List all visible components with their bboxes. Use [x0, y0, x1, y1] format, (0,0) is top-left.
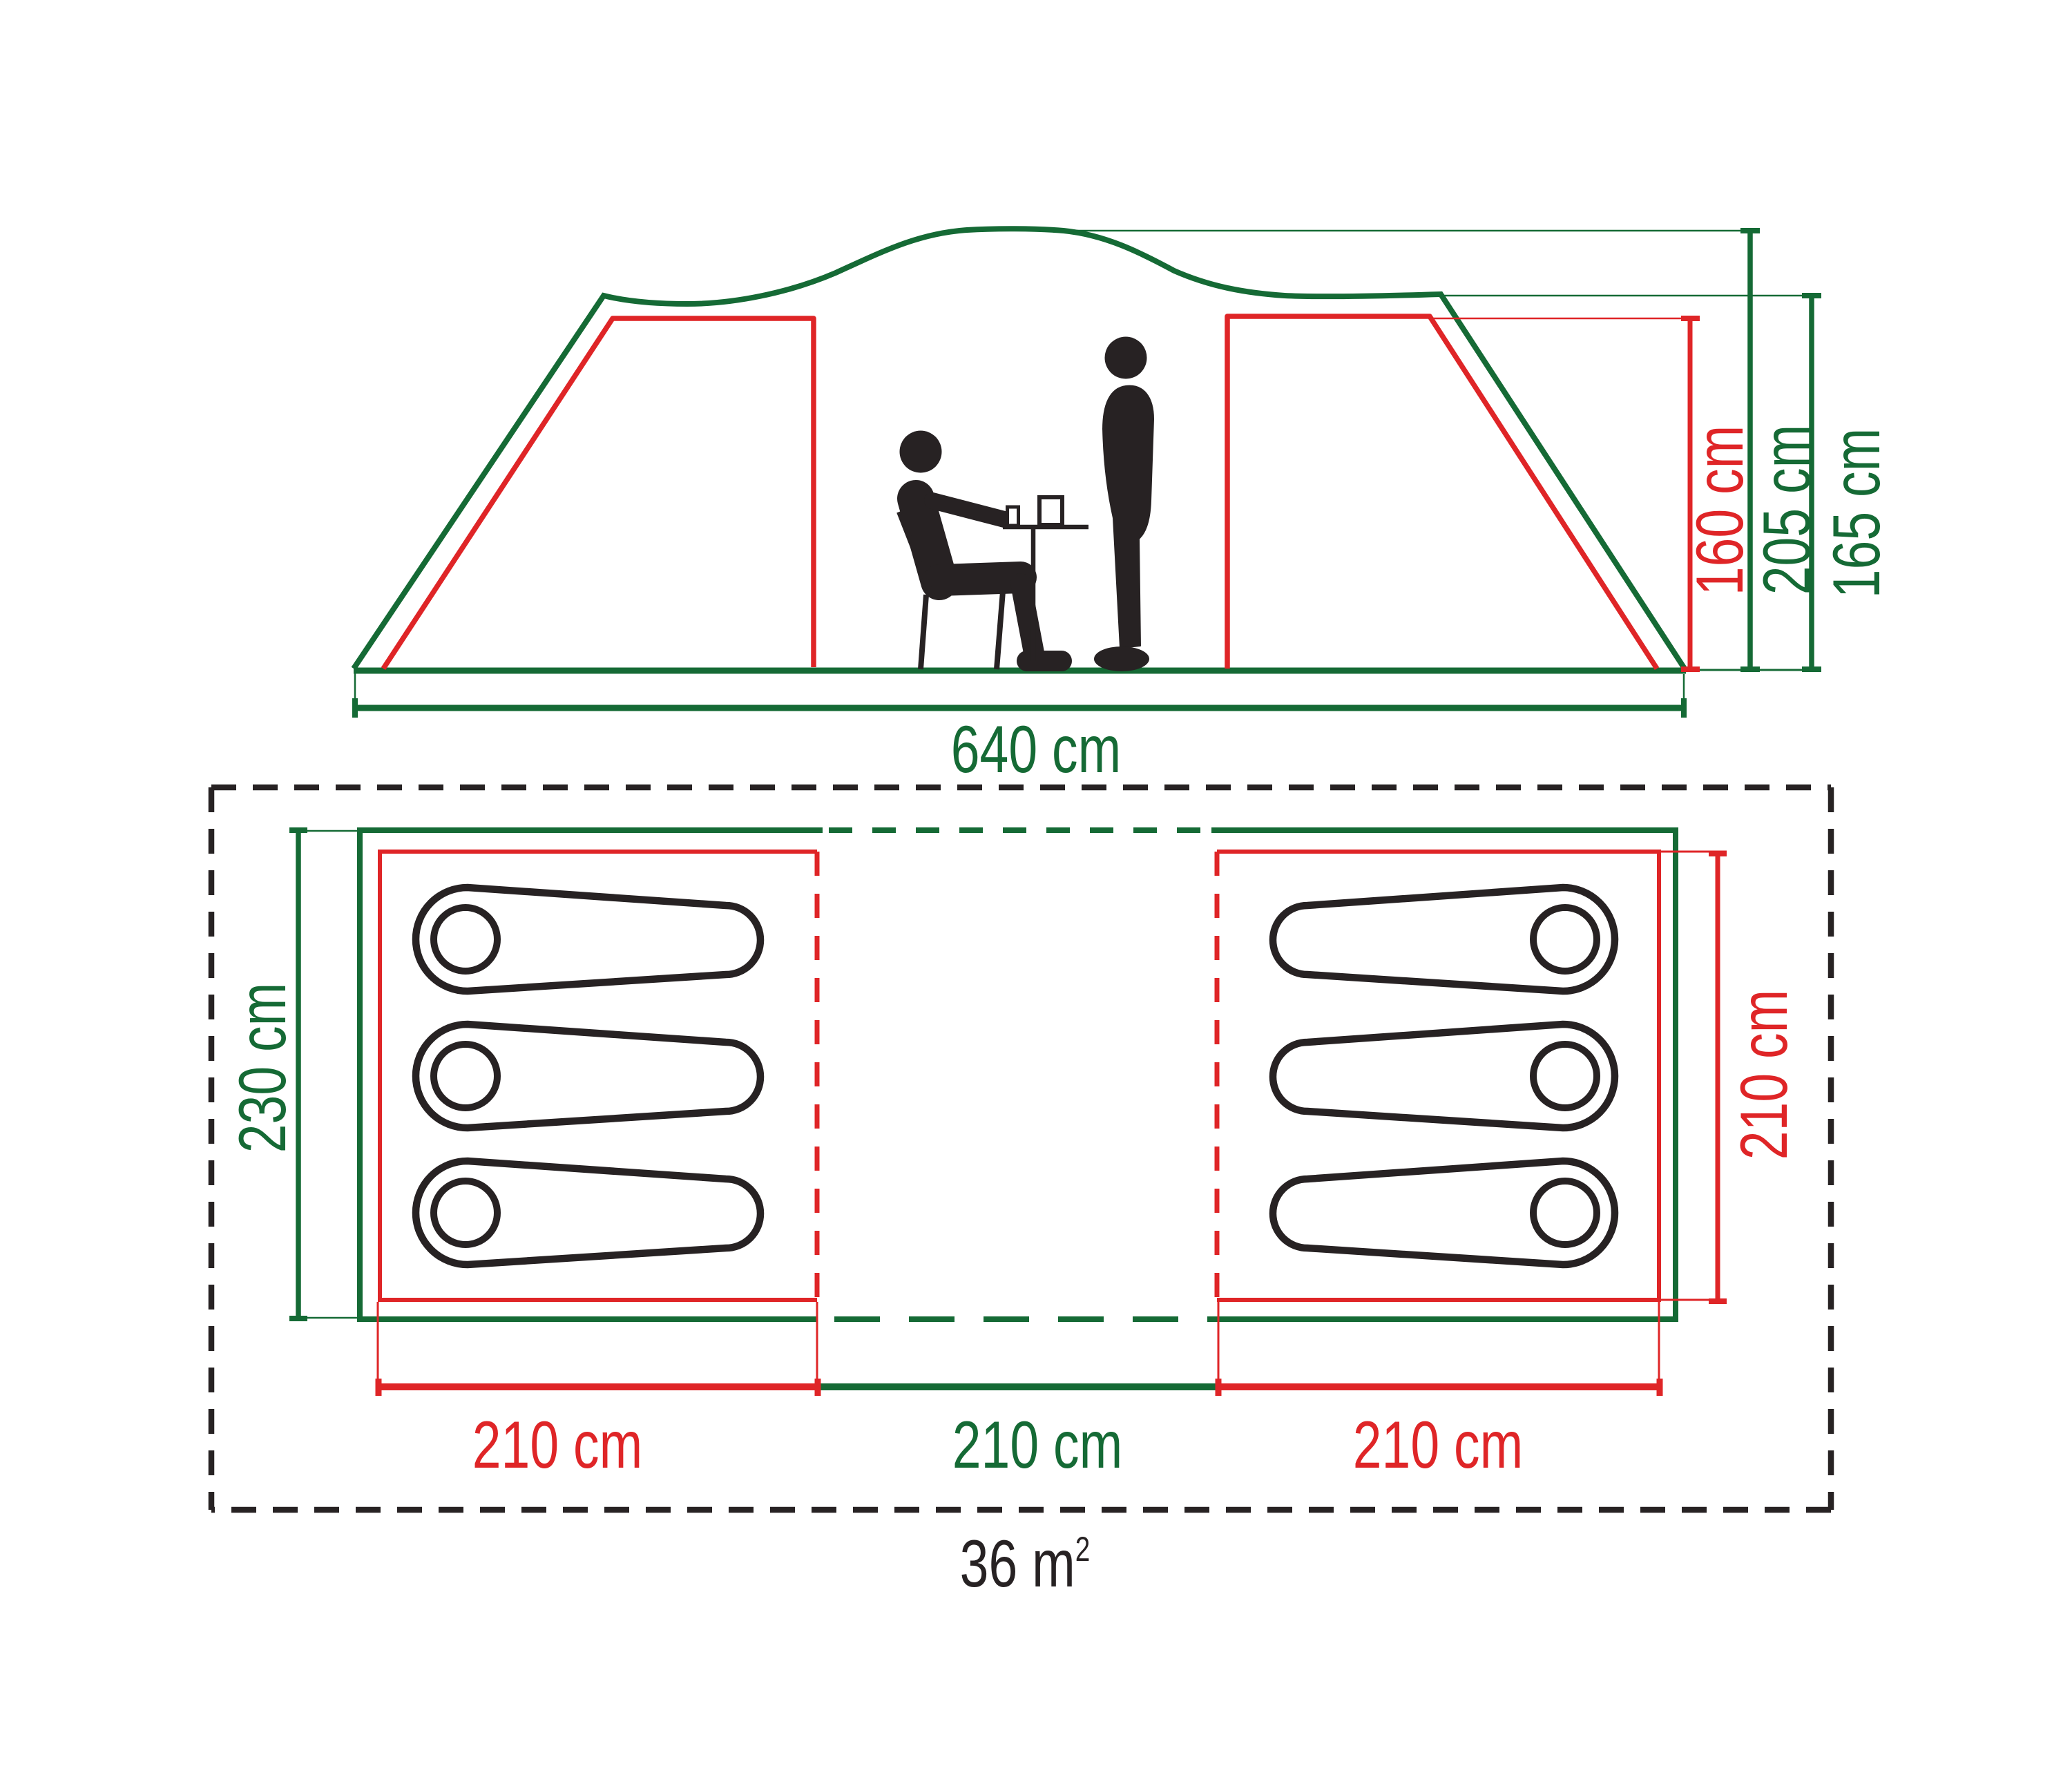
svg-text:205 cm: 205 cm	[1749, 425, 1824, 595]
svg-text:165 cm: 165 cm	[1819, 428, 1894, 598]
svg-text:230 cm: 230 cm	[225, 983, 300, 1153]
svg-text:210 cm: 210 cm	[472, 1408, 642, 1482]
svg-text:210 cm: 210 cm	[1727, 990, 1801, 1160]
svg-text:210 cm: 210 cm	[952, 1408, 1122, 1482]
svg-text:640 cm: 640 cm	[951, 712, 1121, 787]
svg-text:160 cm: 160 cm	[1682, 425, 1757, 595]
svg-text:36 m2: 36 m2	[960, 1526, 1091, 1601]
svg-text:210 cm: 210 cm	[1353, 1408, 1523, 1482]
